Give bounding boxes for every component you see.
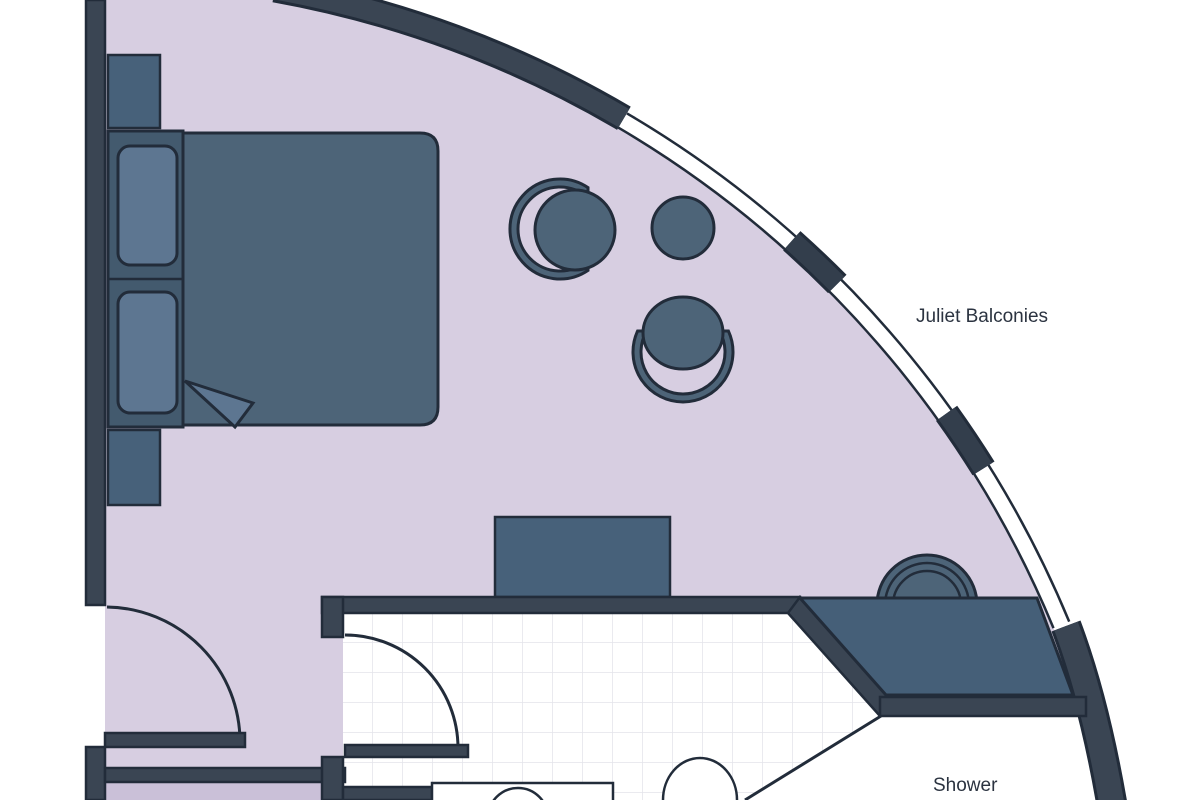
nightstand-top [108,55,160,128]
shower-label: Shower [933,775,998,796]
bathroom-left-wall-upper [322,597,343,637]
side-table [652,197,714,259]
armchair-right-seat [535,190,615,270]
left-wall-upper [86,0,105,605]
armchair-up-seat [643,297,723,369]
left-wall-lower [86,747,105,800]
bathroom-door-leaf [345,745,468,757]
pillow-bottom [118,292,177,413]
bedroom-bottom-wall [105,768,345,782]
nightstand-bottom [108,430,160,505]
dresser [495,517,670,597]
lower-hall-floor [105,782,322,800]
shower-top-wall [880,697,1086,716]
bathroom-bottom-wall [343,787,432,800]
pillow-top [118,146,177,265]
bed-mattress [183,133,438,425]
bathroom-top-wall [322,597,800,613]
entry-door-leaf [105,733,245,747]
floor-plan: Juliet Balconies Shower [0,0,1200,800]
bathroom-left-wall-lower [322,757,343,800]
juliet-balconies-label: Juliet Balconies [916,306,1048,327]
